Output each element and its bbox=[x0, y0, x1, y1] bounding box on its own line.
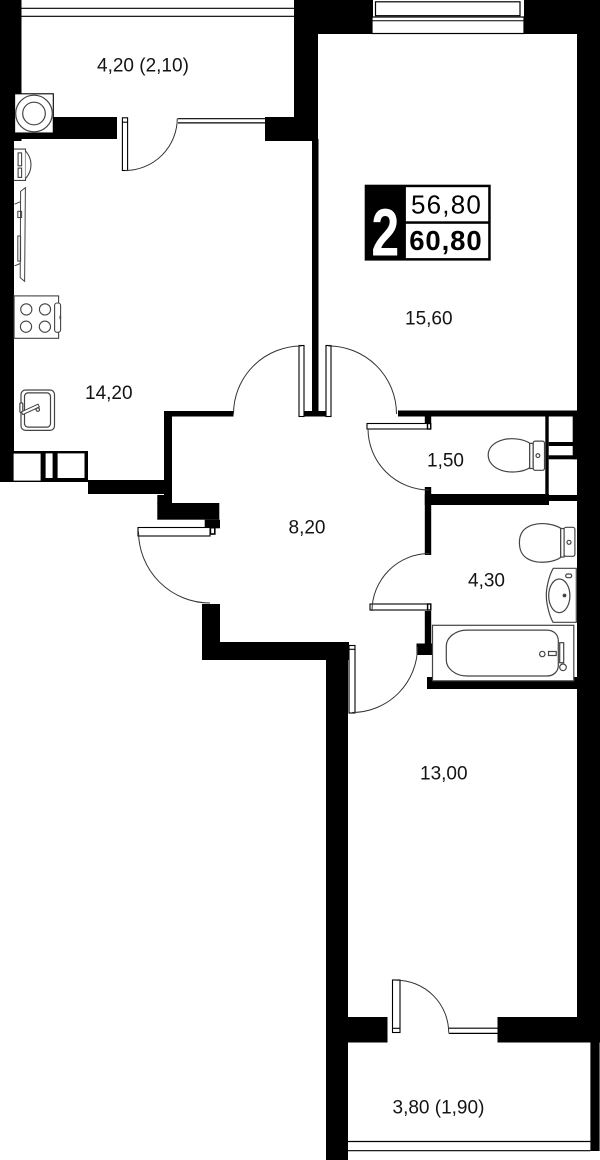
svg-text:60,80: 60,80 bbox=[409, 225, 482, 256]
svg-text:8,20: 8,20 bbox=[289, 518, 326, 539]
svg-text:13,00: 13,00 bbox=[420, 764, 468, 785]
svg-text:56,80: 56,80 bbox=[411, 190, 482, 220]
svg-text:4,20 (2,10): 4,20 (2,10) bbox=[97, 56, 189, 77]
svg-text:1,50: 1,50 bbox=[427, 451, 464, 472]
svg-text:4,30: 4,30 bbox=[468, 571, 505, 592]
svg-text:14,20: 14,20 bbox=[85, 383, 133, 404]
svg-text:3,80 (1,90): 3,80 (1,90) bbox=[393, 1098, 485, 1119]
svg-text:2: 2 bbox=[371, 196, 399, 270]
svg-text:15,60: 15,60 bbox=[405, 309, 453, 330]
